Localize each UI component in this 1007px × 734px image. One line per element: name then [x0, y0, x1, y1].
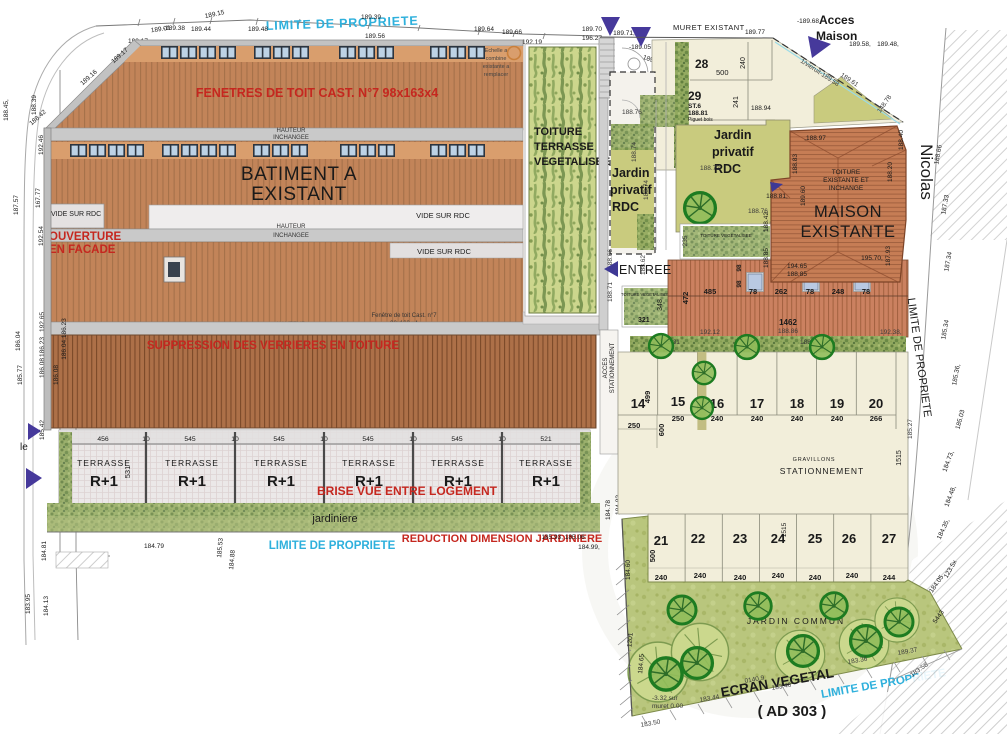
svg-text:194.65: 194.65 — [787, 263, 807, 270]
svg-text:STATIONNEMENT: STATIONNEMENT — [610, 342, 616, 393]
svg-text:privatif: privatif — [712, 145, 755, 159]
svg-text:29: 29 — [688, 89, 702, 103]
svg-text:R+1: R+1 — [267, 473, 295, 490]
svg-text:Fenêtre de toit Cast. n°7: Fenêtre de toit Cast. n°7 — [371, 313, 437, 319]
svg-text:262: 262 — [775, 287, 788, 296]
svg-text:189.66: 189.66 — [502, 29, 522, 36]
svg-text:EXISTANT: EXISTANT — [251, 184, 347, 205]
svg-text:240: 240 — [655, 573, 668, 582]
svg-text:188.72: 188.72 — [700, 165, 720, 172]
svg-text:240: 240 — [751, 414, 764, 423]
svg-text:-3.32 sur: -3.32 sur — [652, 695, 678, 702]
svg-text:188.45,: 188.45, — [3, 99, 10, 121]
svg-text:321: 321 — [638, 317, 650, 324]
svg-text:TOITURE VEGETALISEE: TOITURE VEGETALISEE — [700, 233, 752, 238]
svg-text:78: 78 — [749, 287, 757, 296]
svg-text:INCHANGEE: INCHANGEE — [273, 233, 309, 239]
svg-text:241: 241 — [733, 96, 740, 108]
svg-text:19: 19 — [830, 396, 844, 411]
svg-text:R+1: R+1 — [90, 473, 118, 490]
svg-text:Jardin: Jardin — [714, 128, 752, 142]
svg-text:188.74: 188.74 — [631, 142, 638, 162]
svg-text:545: 545 — [451, 436, 463, 443]
svg-text:GRAVILLONS: GRAVILLONS — [793, 457, 836, 463]
svg-text:28: 28 — [695, 57, 709, 71]
svg-text:TERRASSE: TERRASSE — [431, 458, 485, 468]
svg-text:Jardin: Jardin — [612, 166, 650, 180]
svg-text:FENETRES DE TOIT CAST. N°7 98x: FENETRES DE TOIT CAST. N°7 98x163x4 — [196, 86, 438, 100]
svg-text:240: 240 — [734, 573, 747, 582]
svg-text:184.79: 184.79 — [144, 543, 164, 550]
svg-text:235: 235 — [682, 235, 689, 246]
svg-text:-189.38: -189.38 — [163, 25, 185, 32]
svg-text:240: 240 — [846, 571, 859, 580]
svg-text:R+1: R+1 — [178, 473, 206, 490]
svg-text:SUPPRESSION DES VERRIERES EN T: SUPPRESSION DES VERRIERES EN TOITURE — [147, 340, 400, 352]
svg-text:1515: 1515 — [896, 450, 903, 466]
svg-text:192.38,: 192.38, — [880, 329, 902, 336]
svg-text:BATIMENT A: BATIMENT A — [241, 164, 357, 185]
svg-text:existante a: existante a — [483, 64, 511, 70]
svg-text:188.20: 188.20 — [887, 162, 894, 182]
svg-text:BRISE VUE ENTRE LOGEMENT: BRISE VUE ENTRE LOGEMENT — [317, 484, 498, 498]
svg-text:188.83: 188.83 — [792, 154, 799, 174]
svg-text:combine: combine — [486, 56, 507, 62]
svg-text:266: 266 — [870, 414, 883, 423]
svg-text:15: 15 — [671, 394, 685, 409]
svg-text:26: 26 — [842, 531, 856, 546]
svg-text:R+1: R+1 — [532, 473, 560, 490]
svg-text:ST.6: ST.6 — [688, 103, 701, 110]
svg-text:188.94: 188.94 — [751, 105, 771, 112]
svg-text:muret 0.00: muret 0.00 — [652, 703, 683, 710]
svg-text:189.39: 189.39 — [361, 14, 381, 21]
svg-text:195.70,: 195.70, — [861, 255, 883, 262]
svg-text:MURET EXISTANT: MURET EXISTANT — [673, 23, 745, 32]
svg-text:27: 27 — [882, 531, 896, 546]
svg-text:1201: 1201 — [626, 632, 634, 647]
svg-text:244: 244 — [883, 573, 896, 582]
svg-text:192.12: 192.12 — [700, 329, 720, 336]
svg-text:545: 545 — [273, 436, 285, 443]
svg-text:LIMITE DE PROPRIETE: LIMITE DE PROPRIETE — [269, 540, 396, 552]
svg-text:25: 25 — [808, 531, 822, 546]
svg-text:189.71,: 189.71, — [613, 30, 635, 37]
svg-text:499: 499 — [643, 391, 652, 404]
svg-text:192.46: 192.46 — [38, 135, 45, 155]
svg-text:EXISTANTE ET: EXISTANTE ET — [823, 177, 869, 184]
svg-text:240: 240 — [711, 414, 724, 423]
svg-text:188.85: 188.85 — [763, 248, 770, 268]
svg-text:TERRASSE: TERRASSE — [254, 458, 308, 468]
svg-text:MAISON: MAISON — [814, 203, 882, 221]
svg-text:le: le — [20, 442, 28, 453]
svg-text:RDC: RDC — [612, 200, 639, 214]
svg-text:Acces: Acces — [819, 13, 855, 27]
svg-text:ACCES: ACCES — [603, 358, 609, 379]
svg-text:EN FACADE: EN FACADE — [49, 244, 116, 256]
svg-text:TERRASSE: TERRASSE — [519, 458, 573, 468]
svg-text:185.93, 185.06: 185.93, 185.06 — [541, 534, 585, 541]
svg-text:189.70: 189.70 — [582, 26, 602, 33]
svg-text:jardiniere: jardiniere — [311, 513, 357, 525]
svg-text:189.48: 189.48 — [248, 26, 268, 33]
svg-text:600: 600 — [657, 424, 666, 437]
svg-text:188.86: 188.86 — [778, 328, 798, 335]
svg-text:185.27: 185.27 — [907, 419, 914, 439]
svg-text:184.99,: 184.99, — [578, 544, 600, 551]
svg-text:189.60: 189.60 — [800, 186, 807, 206]
svg-text:INCHANGEE: INCHANGEE — [273, 135, 309, 141]
svg-text:187.93: 187.93 — [885, 246, 892, 266]
svg-text:HAUTEUR: HAUTEUR — [276, 224, 306, 230]
svg-text:183.95: 183.95 — [25, 594, 32, 614]
svg-text:VIDE SUR RDC: VIDE SUR RDC — [51, 211, 101, 218]
svg-text:TERRASSE: TERRASSE — [534, 141, 594, 153]
svg-text:TOITURE: TOITURE — [534, 126, 582, 138]
svg-text:189.77: 189.77 — [745, 29, 765, 36]
svg-text:240: 240 — [694, 571, 707, 580]
svg-text:17: 17 — [750, 396, 764, 411]
svg-text:184.78: 184.78 — [605, 500, 612, 520]
svg-text:78: 78 — [806, 287, 814, 296]
svg-text:186.04: 186.04 — [15, 331, 22, 351]
svg-text:1462: 1462 — [779, 318, 797, 327]
svg-text:186.04,186.23: 186.04,186.23 — [61, 318, 68, 360]
svg-text:184.60: 184.60 — [625, 560, 632, 580]
svg-text:186.08: 186.08 — [53, 365, 60, 385]
svg-text:187.57: 187.57 — [13, 195, 20, 215]
svg-text:TERRASSE: TERRASSE — [165, 458, 219, 468]
svg-text:472: 472 — [681, 292, 690, 305]
svg-text:,188.97: ,188.97 — [804, 135, 826, 142]
svg-text:348: 348 — [657, 299, 664, 311]
svg-text:ENTREE: ENTREE — [619, 263, 672, 277]
svg-text:545: 545 — [184, 436, 196, 443]
svg-text:184.13: 184.13 — [43, 596, 50, 616]
svg-text:TOITURE VEGETALISEE: TOITURE VEGETALISEE — [621, 292, 669, 297]
svg-text:240: 240 — [831, 414, 844, 423]
svg-text:188.81: 188.81 — [688, 110, 708, 117]
svg-text:-189.68: -189.68 — [797, 18, 819, 25]
svg-text:250: 250 — [628, 421, 641, 430]
svg-text:Nicolas: Nicolas — [917, 144, 936, 200]
svg-text:STATIONNEMENT: STATIONNEMENT — [780, 466, 864, 476]
svg-text:189.48,: 189.48, — [877, 41, 899, 48]
svg-text:188.74: 188.74 — [643, 180, 650, 200]
svg-text:188.76: 188.76 — [622, 109, 642, 116]
svg-text:21: 21 — [654, 533, 668, 548]
svg-text:188.42: 188.42 — [763, 212, 770, 232]
svg-text:500: 500 — [648, 550, 657, 563]
svg-text:98: 98 — [736, 264, 743, 272]
svg-text:456: 456 — [97, 436, 109, 443]
svg-text:( AD 303 ): ( AD 303 ) — [758, 703, 827, 720]
svg-text:23: 23 — [733, 531, 747, 546]
svg-text:485: 485 — [704, 287, 717, 296]
svg-text:188.71: 188.71 — [607, 282, 614, 302]
svg-text:188.39: 188.39 — [31, 95, 38, 115]
svg-text:531: 531 — [123, 466, 132, 479]
svg-text:78: 78 — [862, 287, 870, 296]
svg-text:240: 240 — [772, 571, 785, 580]
svg-text:TERRASSE: TERRASSE — [342, 458, 396, 468]
svg-text:189.44: 189.44 — [191, 26, 211, 33]
svg-text:248: 248 — [832, 287, 845, 296]
svg-text:500: 500 — [716, 68, 729, 77]
svg-text:188.40: 188.40 — [898, 130, 905, 150]
svg-text:VIDE SUR RDC: VIDE SUR RDC — [417, 247, 471, 256]
svg-text:INCHANGE: INCHANGE — [829, 185, 864, 192]
svg-text:18: 18 — [790, 396, 804, 411]
svg-text:188.85: 188.85 — [787, 271, 807, 278]
svg-text:185.77: 185.77 — [17, 365, 24, 385]
svg-text:20: 20 — [869, 396, 883, 411]
svg-text:HAUTEUR: HAUTEUR — [276, 128, 306, 134]
svg-text:189.64: 189.64 — [474, 26, 494, 33]
svg-text:OUVERTURE: OUVERTURE — [49, 231, 122, 243]
svg-text:Maison: Maison — [816, 29, 857, 43]
svg-text:TOITURE: TOITURE — [832, 169, 861, 176]
svg-text:240: 240 — [740, 57, 747, 69]
svg-text:98: 98 — [736, 280, 743, 288]
svg-text:Echelle a: Echelle a — [485, 48, 509, 54]
svg-text:189.56: 189.56 — [365, 33, 385, 40]
svg-text:Piguet bois: Piguet bois — [688, 117, 713, 123]
svg-text:521: 521 — [540, 436, 552, 443]
svg-text:22: 22 — [691, 531, 705, 546]
svg-text:240: 240 — [791, 414, 804, 423]
svg-text:1515: 1515 — [781, 522, 788, 537]
svg-text:remplacer: remplacer — [484, 72, 509, 78]
svg-text:240: 240 — [809, 573, 822, 582]
svg-text:545: 545 — [362, 436, 374, 443]
svg-text:184.81: 184.81 — [41, 541, 48, 561]
svg-text:VIDE SUR RDC: VIDE SUR RDC — [416, 211, 470, 220]
svg-text:167.77: 167.77 — [35, 188, 42, 208]
svg-text:EXISTANTE: EXISTANTE — [801, 223, 896, 241]
svg-text:250: 250 — [672, 414, 685, 423]
svg-text:188.81,: 188.81, — [766, 193, 788, 200]
